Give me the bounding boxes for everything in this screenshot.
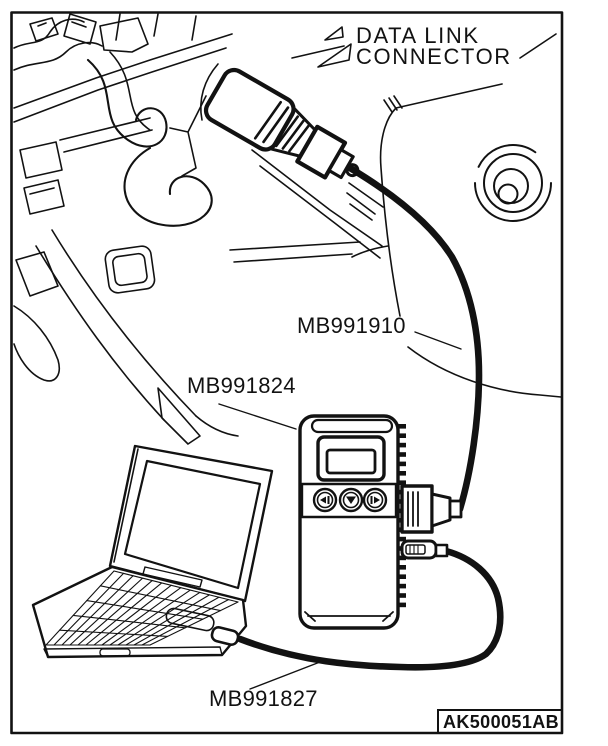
leader-mb991827 <box>250 662 320 689</box>
figure-code-box: AK500051AB <box>437 709 563 734</box>
data-link-connector-line1: DATA LINK <box>356 25 512 46</box>
leader-mb991910 <box>415 332 461 349</box>
mb991824-label: MB991824 <box>187 375 296 396</box>
figure-code: AK500051AB <box>443 712 559 733</box>
data-link-connector-line2: CONNECTOR <box>356 46 512 67</box>
data-link-connector-label: DATA LINK CONNECTOR <box>356 25 512 67</box>
vci-usb-connector <box>402 541 447 558</box>
line-art <box>0 0 608 746</box>
diagram-page: DATA LINK CONNECTOR MB991910 MB991824 MB… <box>0 0 608 746</box>
pointer-arrow-icon <box>318 27 351 67</box>
right-arrow-bar-icon <box>371 496 373 504</box>
dash-edge-lines <box>292 34 561 397</box>
ignition-key-cylinder <box>475 145 551 221</box>
vci-dsub-connector <box>402 486 461 532</box>
vci-device <box>300 416 406 628</box>
leader-mb991824 <box>219 404 296 429</box>
left-arrow-bar-icon <box>328 496 330 504</box>
mb991910-label: MB991910 <box>297 315 406 336</box>
mb991827-label: MB991827 <box>209 688 318 709</box>
vci-buttons <box>302 484 396 517</box>
laptop <box>33 446 272 657</box>
